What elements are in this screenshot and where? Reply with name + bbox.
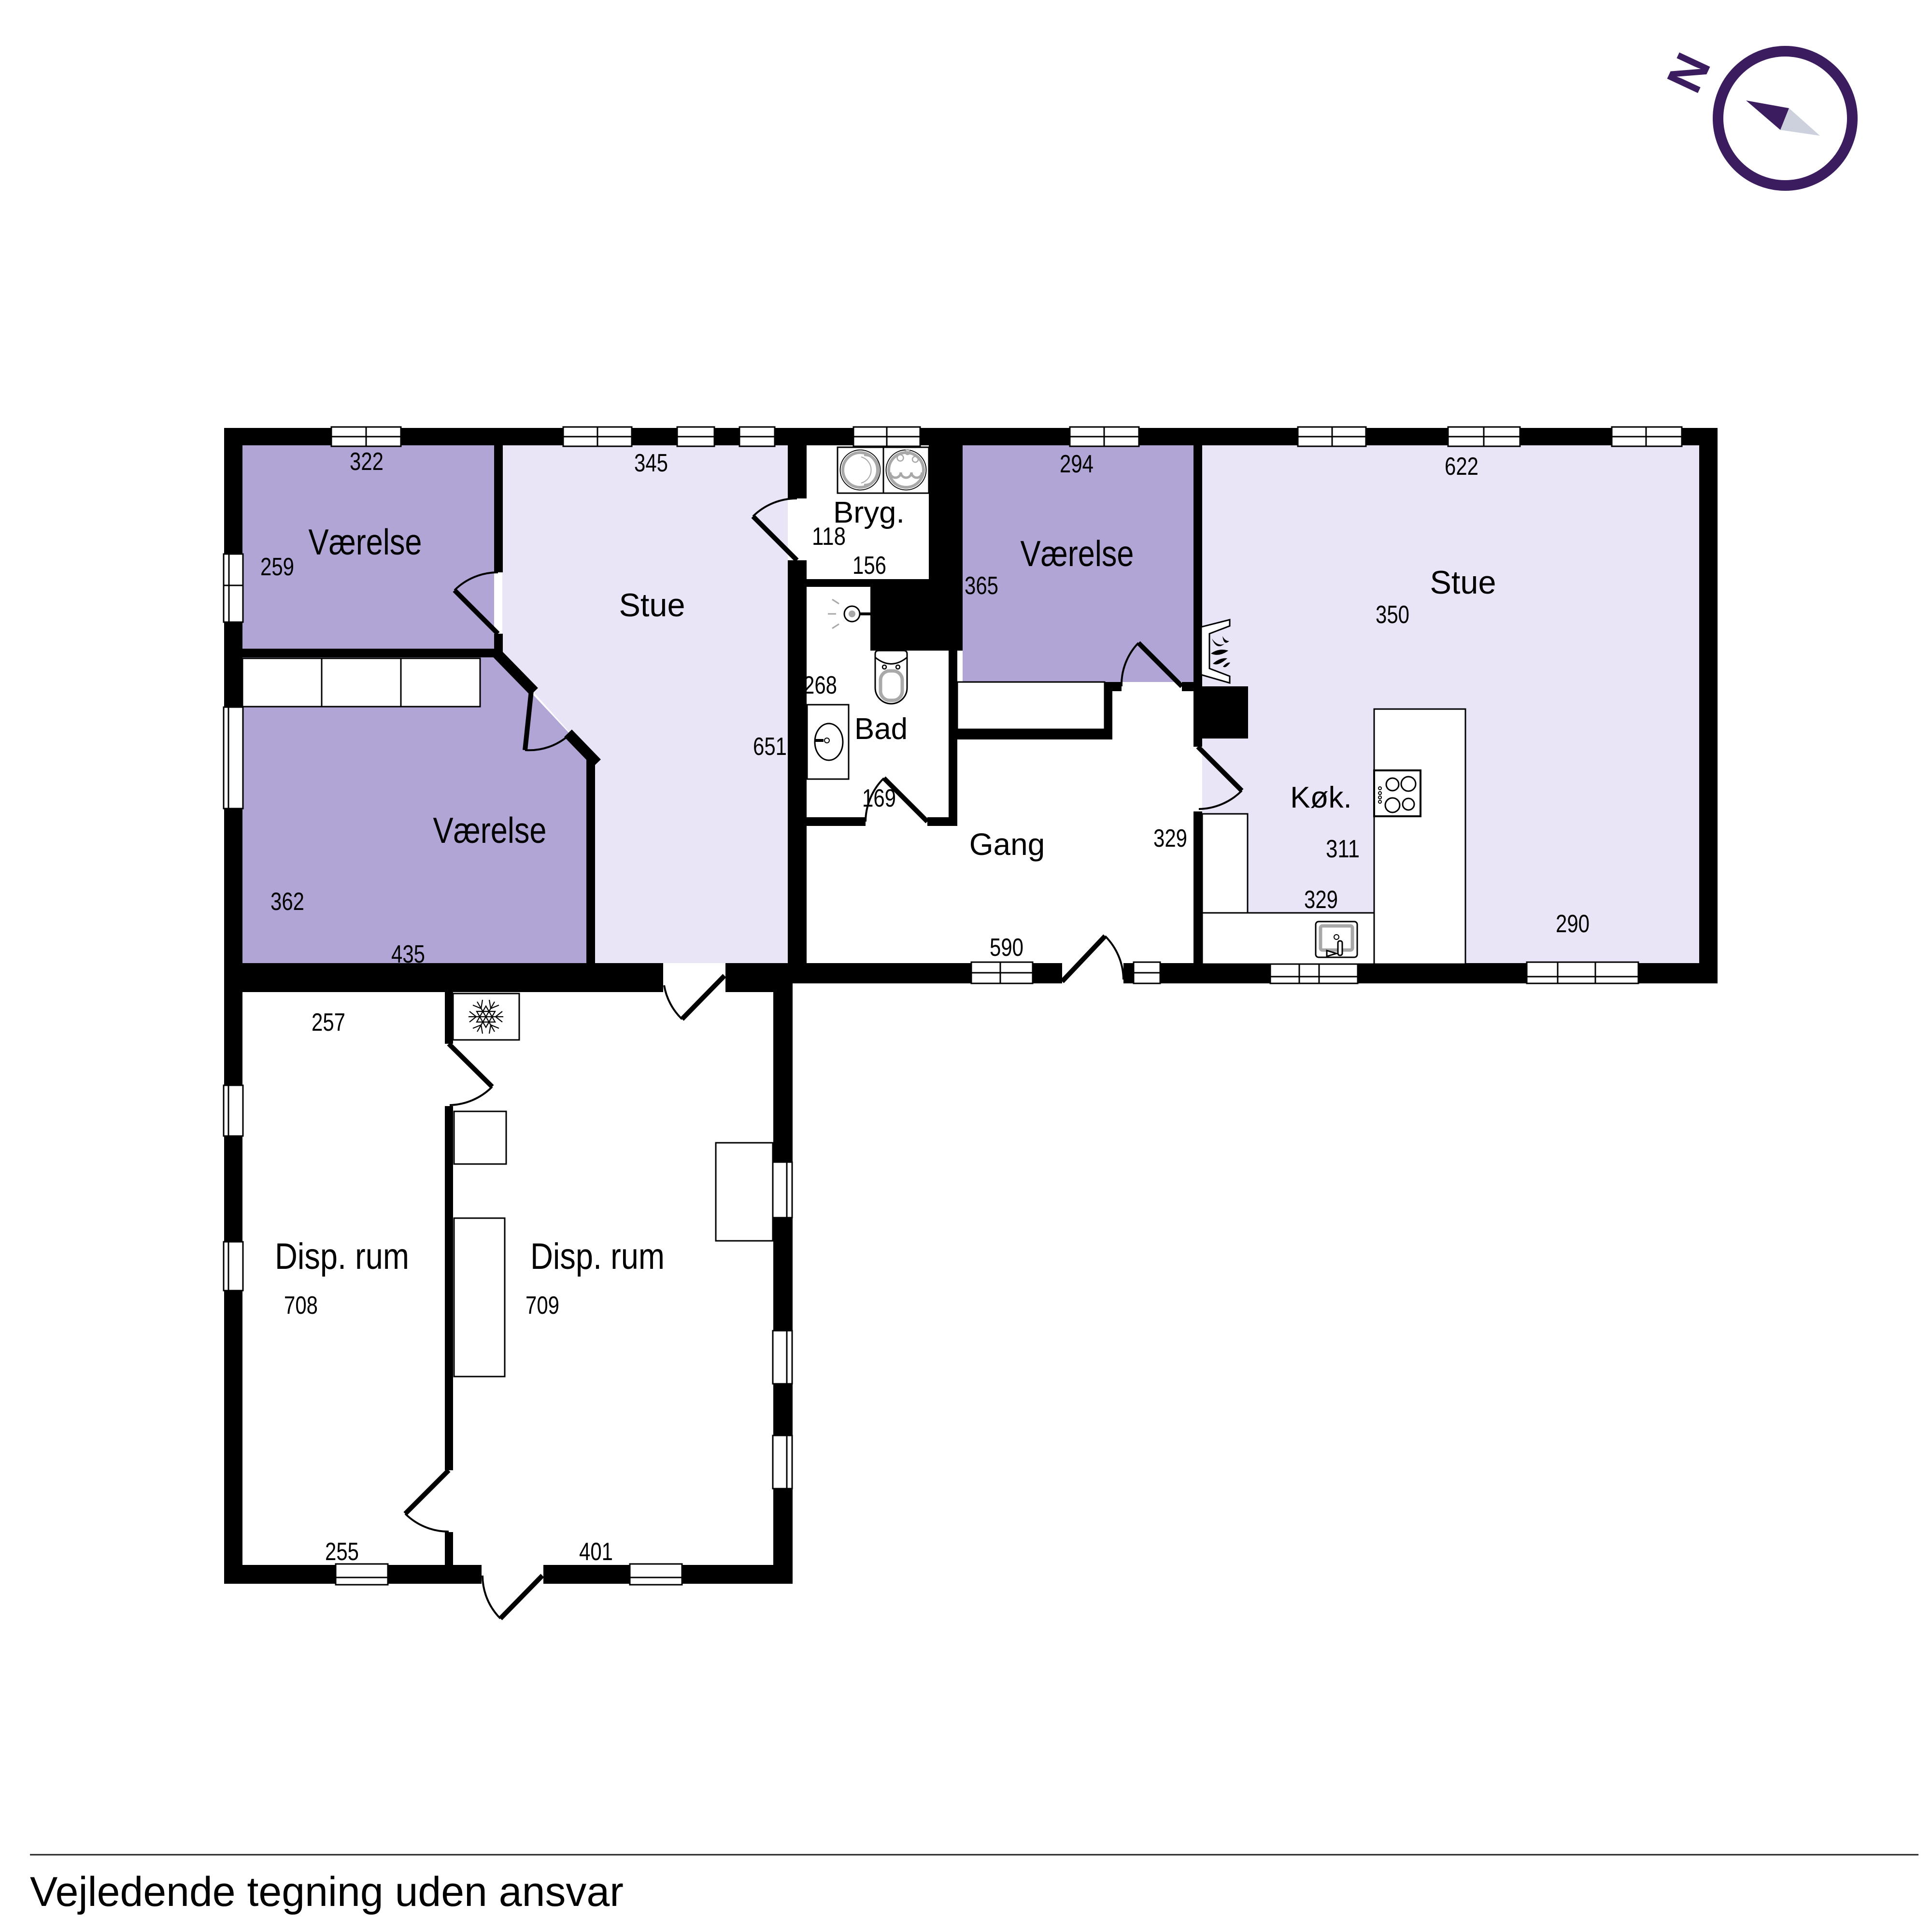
svg-text:Gang: Gang — [969, 827, 1045, 862]
svg-text:Disp. rum: Disp. rum — [530, 1236, 665, 1277]
svg-text:Vejledende tegning uden ansvar: Vejledende tegning uden ansvar — [30, 1869, 624, 1915]
svg-text:Værelse: Værelse — [309, 522, 422, 562]
svg-text:435: 435 — [391, 940, 425, 968]
svg-text:362: 362 — [270, 888, 304, 916]
svg-text:Værelse: Værelse — [433, 810, 547, 851]
svg-text:Stue: Stue — [1430, 564, 1496, 601]
svg-text:156: 156 — [852, 552, 886, 580]
svg-text:345: 345 — [634, 449, 668, 477]
svg-text:255: 255 — [325, 1538, 359, 1566]
svg-text:Køk.: Køk. — [1290, 781, 1351, 814]
svg-text:365: 365 — [965, 572, 998, 600]
svg-text:329: 329 — [1153, 824, 1187, 852]
svg-text:590: 590 — [990, 934, 1023, 962]
svg-text:118: 118 — [812, 523, 846, 551]
svg-text:622: 622 — [1445, 453, 1478, 481]
svg-text:322: 322 — [350, 448, 384, 476]
svg-text:401: 401 — [579, 1538, 613, 1566]
svg-text:709: 709 — [526, 1292, 559, 1320]
svg-text:708: 708 — [284, 1292, 318, 1320]
svg-text:311: 311 — [1326, 835, 1360, 863]
svg-text:169: 169 — [862, 784, 896, 812]
svg-text:350: 350 — [1376, 601, 1409, 629]
svg-text:257: 257 — [312, 1009, 345, 1037]
svg-text:290: 290 — [1556, 910, 1590, 938]
svg-text:Stue: Stue — [619, 587, 685, 624]
svg-text:294: 294 — [1060, 450, 1094, 478]
svg-text:259: 259 — [260, 553, 294, 581]
svg-text:329: 329 — [1304, 886, 1338, 914]
svg-text:Værelse: Værelse — [1021, 533, 1134, 574]
svg-text:268: 268 — [803, 671, 837, 699]
svg-text:651: 651 — [753, 733, 787, 761]
svg-text:Disp. rum: Disp. rum — [275, 1236, 409, 1277]
svg-text:Bad: Bad — [854, 712, 908, 746]
